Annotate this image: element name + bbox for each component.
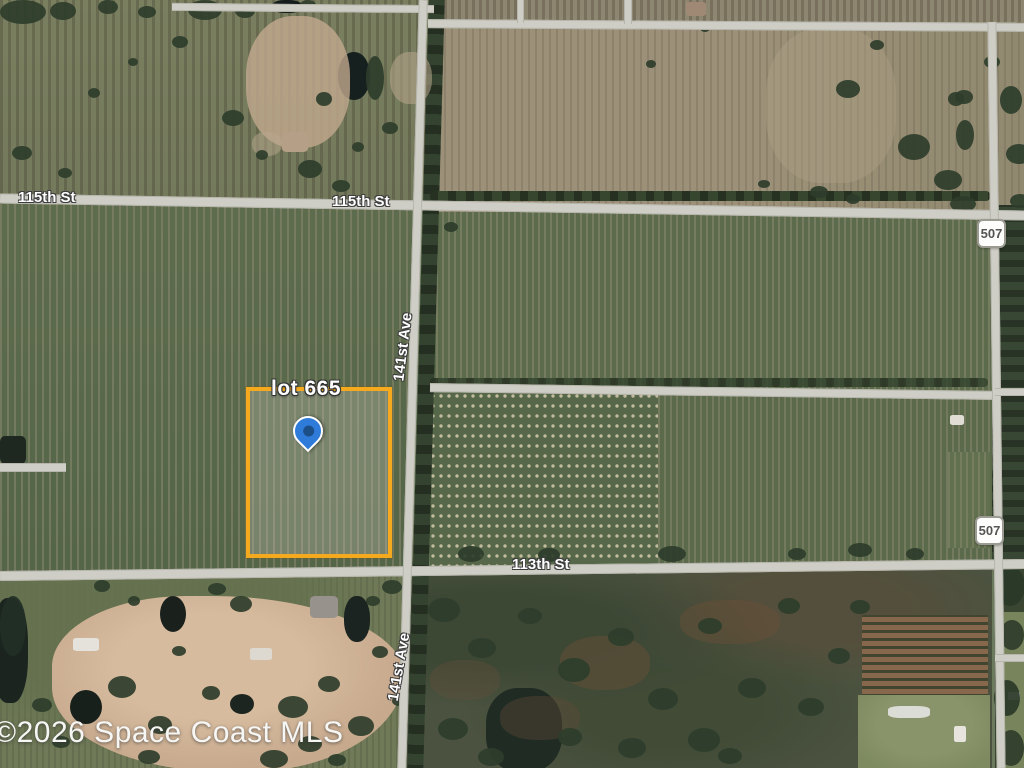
tree: [138, 750, 160, 764]
pond: [230, 694, 254, 714]
tree: [0, 596, 26, 656]
tree: [108, 676, 136, 698]
tree: [848, 543, 872, 557]
hedge-north-of-115th: [430, 191, 990, 201]
tree: [230, 596, 252, 612]
structure: [950, 415, 964, 425]
structure: [310, 596, 338, 618]
tree: [518, 608, 542, 624]
tree: [172, 36, 188, 48]
tree: [718, 748, 742, 764]
tree: [948, 92, 964, 106]
tree: [688, 728, 720, 752]
tree: [366, 56, 384, 100]
tree: [298, 160, 322, 178]
parcel-label: lot 665: [271, 377, 341, 401]
field-mid-right-lower: [658, 392, 992, 568]
road-stub-north-1: [624, 0, 632, 24]
orchard-rows-bottom-right: [862, 615, 988, 697]
field-mid-right-upper: [430, 212, 992, 394]
road-stub-north-2: [517, 0, 524, 23]
tree: [478, 748, 504, 766]
tree: [1010, 194, 1024, 208]
field-orchard: [430, 392, 658, 568]
tree: [558, 728, 582, 746]
tree: [1000, 86, 1022, 114]
street-label-115th-west: 115th St: [18, 189, 76, 206]
parcel-boundary-lot-665: [246, 387, 392, 558]
tree: [788, 548, 806, 560]
tree: [778, 598, 800, 614]
tree: [810, 186, 828, 198]
tree: [738, 678, 766, 698]
tree: [172, 646, 186, 656]
tree: [828, 648, 850, 664]
tree: [956, 120, 974, 150]
tree: [222, 110, 244, 126]
structure: [888, 706, 930, 718]
road-stub-east-2: [995, 654, 1024, 662]
tree: [94, 580, 110, 592]
tree: [444, 222, 458, 232]
route-507-shield-lower: 507: [975, 516, 1004, 545]
dirt-patch: [246, 16, 350, 148]
satellite-map[interactable]: lot 665 115th St 115th St 113th St 141st…: [0, 0, 1024, 768]
tree: [88, 88, 100, 98]
tree: [846, 194, 860, 204]
tree: [658, 546, 686, 562]
dirt-patch: [680, 600, 780, 644]
street-label-115th-east: 115th St: [332, 193, 390, 210]
tree: [348, 716, 374, 736]
tree: [58, 168, 72, 178]
tree: [138, 6, 156, 18]
tree: [366, 596, 380, 606]
tree: [208, 583, 226, 595]
road-stub-east-1: [995, 388, 1024, 396]
tree: [428, 598, 460, 622]
tree: [328, 754, 346, 766]
structure: [686, 2, 706, 16]
tree: [98, 0, 118, 14]
structure: [954, 726, 966, 742]
field-top-right: [430, 22, 1024, 214]
tree: [438, 718, 468, 740]
dirt-patch: [766, 28, 896, 183]
tree: [332, 180, 350, 192]
tree: [372, 646, 388, 658]
tree: [316, 92, 332, 106]
structure: [250, 648, 272, 660]
tree: [870, 40, 884, 50]
tree: [798, 698, 824, 716]
tree: [318, 676, 340, 692]
tree: [850, 600, 870, 614]
tree: [128, 58, 138, 66]
tree: [50, 2, 76, 20]
tree: [32, 698, 52, 712]
tree: [382, 122, 398, 134]
tree: [352, 142, 364, 152]
tree: [648, 688, 678, 710]
structure: [73, 638, 99, 651]
pond: [160, 596, 186, 632]
map-pin-dot: [300, 423, 316, 439]
tree: [934, 170, 962, 190]
tree: [202, 686, 220, 700]
tree: [608, 628, 634, 646]
tree: [260, 750, 288, 768]
dirt-patch: [430, 660, 500, 700]
tree: [256, 150, 268, 160]
structure: [282, 132, 308, 152]
tree: [0, 0, 46, 24]
tree: [646, 60, 656, 68]
tree: [558, 658, 590, 682]
tree: [836, 80, 860, 98]
tree: [12, 146, 32, 160]
tree: [698, 618, 722, 634]
tree: [128, 596, 140, 606]
tree: [468, 638, 496, 658]
tree: [906, 548, 924, 560]
tree: [278, 696, 308, 718]
map-pin-icon[interactable]: [292, 415, 322, 457]
tree: [758, 180, 770, 188]
tree: [458, 546, 484, 562]
mls-watermark: ©2026 Space Coast MLS: [0, 716, 343, 750]
street-label-113th: 113th St: [512, 556, 570, 573]
structure: [0, 436, 26, 464]
road-stub-west: [0, 463, 66, 472]
tree: [898, 134, 930, 160]
tree: [382, 580, 402, 594]
route-507-shield-upper: 507: [977, 219, 1006, 248]
tree: [618, 738, 646, 758]
